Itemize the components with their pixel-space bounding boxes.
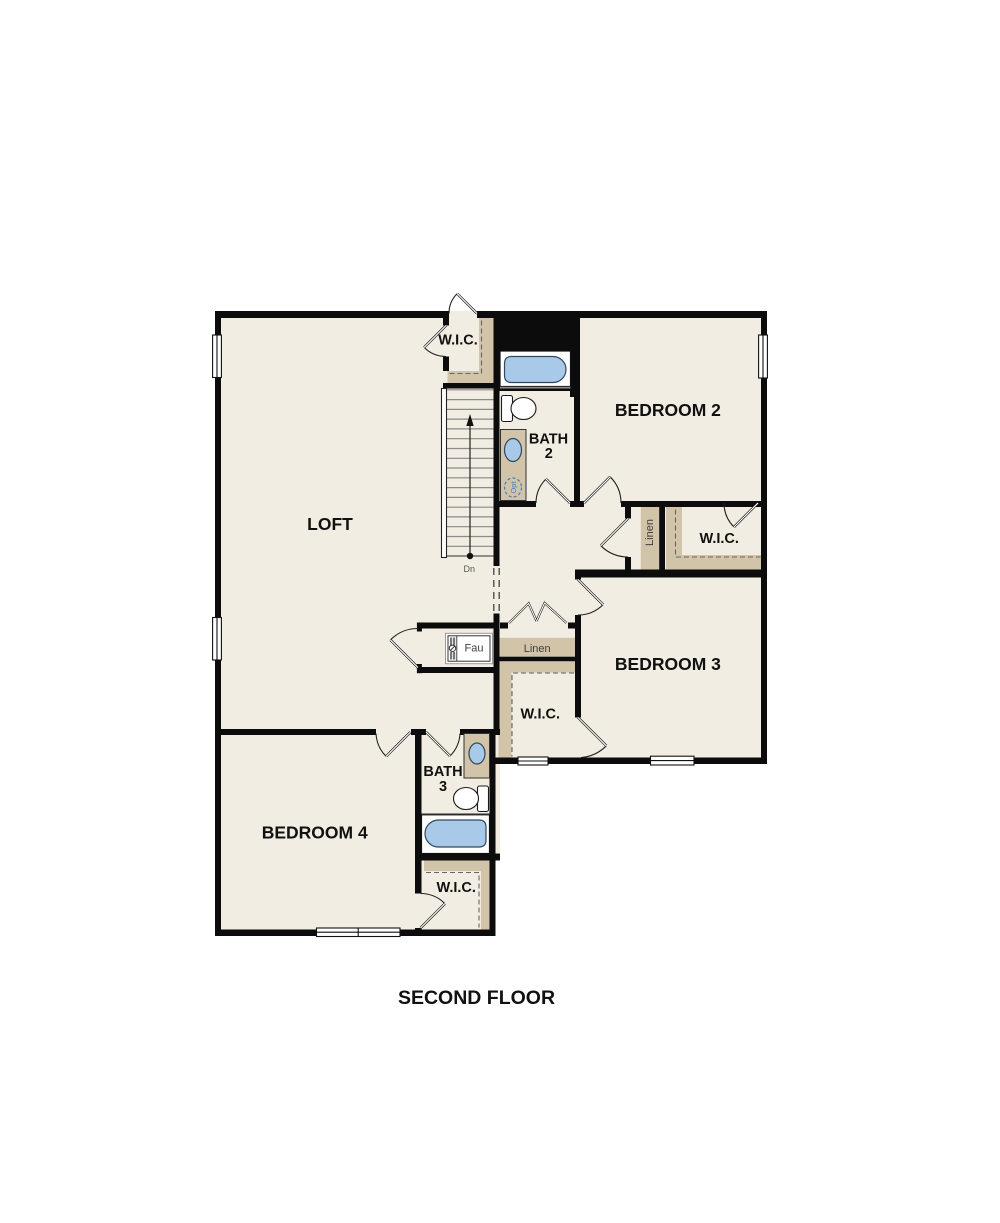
svg-text:Dn: Dn [464,564,476,574]
svg-text:W.I.C.: W.I.C. [699,531,738,547]
svg-text:Fau: Fau [465,643,484,655]
svg-text:BEDROOM 2: BEDROOM 2 [615,400,721,420]
svg-text:BATH: BATH [423,764,462,780]
svg-text:BATH: BATH [529,432,568,448]
svg-text:Linen: Linen [524,643,551,655]
svg-text:3: 3 [439,779,447,795]
svg-text:W.I.C.: W.I.C. [436,880,475,896]
svg-text:Linen: Linen [644,519,656,546]
svg-text:LOFT: LOFT [307,514,353,534]
svg-text:BEDROOM 3: BEDROOM 3 [615,654,721,674]
svg-text:BEDROOM 4: BEDROOM 4 [262,823,368,843]
svg-text:2: 2 [545,446,553,462]
svg-text:W.I.C.: W.I.C. [438,332,477,348]
svg-text:Opt: Opt [509,481,518,494]
svg-text:W.I.C.: W.I.C. [521,707,560,723]
svg-text:SECOND FLOOR: SECOND FLOOR [398,987,555,1009]
